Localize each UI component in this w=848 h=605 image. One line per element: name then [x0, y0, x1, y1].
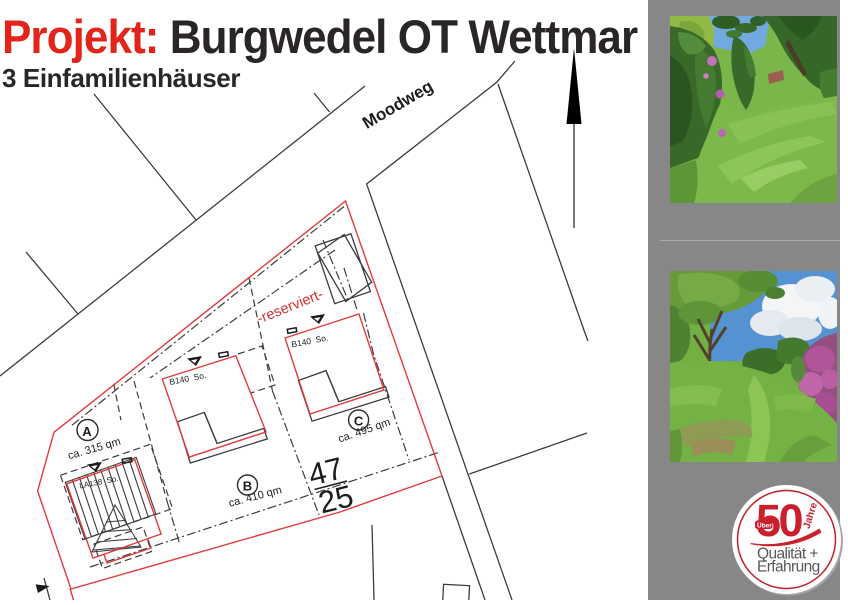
svg-text:A: A — [82, 424, 92, 439]
svg-text:Über: Über — [757, 521, 772, 530]
svg-text:Erfahrung: Erfahrung — [757, 559, 820, 576]
svg-text:-reserviert-: -reserviert- — [255, 286, 326, 327]
svg-text:B140 So.: B140 So. — [168, 370, 207, 387]
svg-text:Moodweg: Moodweg — [359, 76, 436, 132]
svg-text:ca. 315 qm: ca. 315 qm — [66, 436, 122, 463]
svg-text:ca. 495 qm: ca. 495 qm — [337, 416, 392, 445]
